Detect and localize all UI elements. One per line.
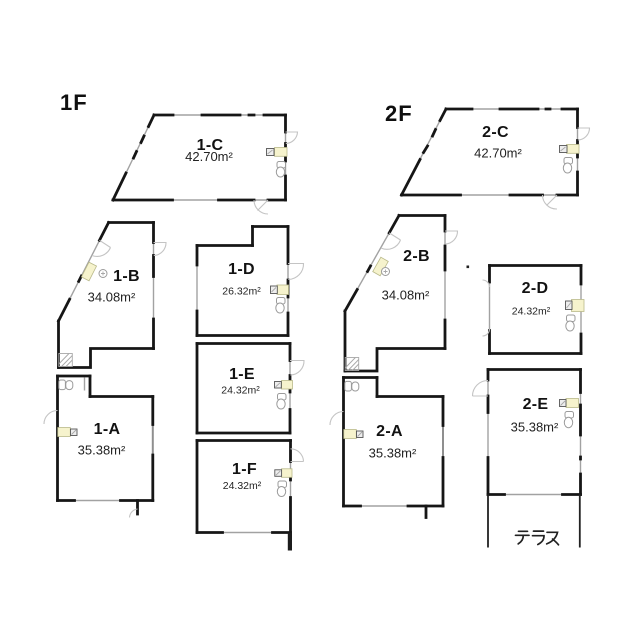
svg-text:1-A: 1-A (94, 421, 121, 438)
svg-text:2-E: 2-E (523, 396, 549, 413)
svg-text:2-D: 2-D (522, 280, 549, 297)
svg-text:24.32m²: 24.32m² (512, 306, 551, 318)
svg-text:2-B: 2-B (403, 248, 430, 265)
svg-text:26.32m²: 26.32m² (222, 286, 261, 298)
svg-text:35.38m²: 35.38m² (369, 446, 417, 461)
svg-text:24.32m²: 24.32m² (223, 480, 262, 492)
svg-text:42.70m²: 42.70m² (185, 149, 233, 164)
svg-text:1-B: 1-B (113, 268, 140, 285)
svg-text:2-A: 2-A (376, 423, 403, 440)
svg-text:2F: 2F (385, 101, 413, 126)
svg-text:1F: 1F (60, 90, 88, 115)
svg-text:34.08m²: 34.08m² (88, 290, 136, 305)
svg-text:24.32m²: 24.32m² (221, 385, 260, 397)
svg-text:1-F: 1-F (232, 461, 257, 478)
svg-text:1-D: 1-D (228, 261, 255, 278)
svg-text:2-C: 2-C (482, 124, 509, 141)
svg-text:35.38m²: 35.38m² (78, 443, 126, 458)
svg-text:35.38m²: 35.38m² (511, 420, 559, 435)
svg-text:34.08m²: 34.08m² (382, 288, 430, 303)
svg-text:42.70m²: 42.70m² (474, 146, 522, 161)
svg-text:1-E: 1-E (229, 366, 255, 383)
